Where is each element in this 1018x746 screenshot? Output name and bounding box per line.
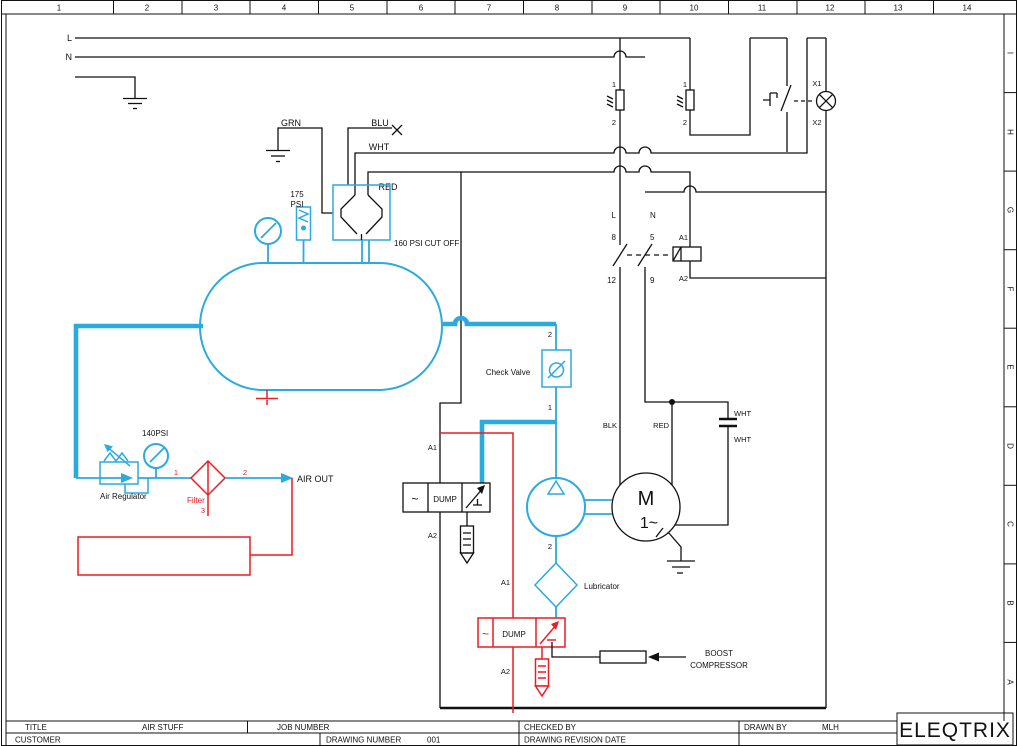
lubricator: Lubricator [535, 563, 620, 618]
schematic-page: 1 2 3 4 5 6 7 8 9 10 11 12 13 14 I H G F… [0, 0, 1018, 746]
coupling-icon [584, 500, 612, 514]
dump2-a2: A2 [501, 667, 510, 676]
pressure-actuated-switch [763, 38, 812, 152]
actuator-icon [763, 93, 777, 106]
ruler-6: 6 [419, 4, 424, 13]
ruler-7: 7 [487, 4, 492, 13]
zone-c: C [1006, 521, 1015, 527]
check-valve-port-2: 2 [548, 330, 552, 339]
dump2-label: DUMP [502, 630, 526, 639]
muffler-icon [536, 647, 549, 696]
zone-f: F [1006, 287, 1015, 292]
muffler-icon [461, 512, 474, 563]
customer-label: CUSTOMER [15, 736, 61, 745]
zone-d: D [1006, 443, 1015, 449]
contactor: L N 8 5 12 9 A1 A2 [607, 186, 826, 485]
lamp-x1: X1 [812, 79, 821, 88]
pump-port-2: 2 [548, 542, 552, 551]
dump1-a1: A1 [428, 443, 437, 452]
dump-valve-1: ~ DUMP A1 A2 [403, 443, 490, 563]
wire-wht-cap-bot: WHT [734, 435, 751, 444]
boost-box [600, 651, 646, 663]
fuse1-terminal-1: 1 [612, 80, 616, 89]
coil-a1: A1 [679, 233, 688, 242]
wire-blu-label: BLU [371, 118, 389, 128]
ruler-13: 13 [894, 4, 903, 13]
dump2-a1: A1 [501, 578, 510, 587]
ruler-2: 2 [145, 4, 150, 13]
lamp-x2: X2 [812, 118, 821, 127]
ruler-1: 1 [57, 4, 62, 13]
ruler-3: 3 [214, 4, 219, 13]
dump1-a2: A2 [428, 531, 437, 540]
switch-contact-left [341, 195, 357, 234]
lubricator-label: Lubricator [584, 582, 620, 591]
zone-a: A [1006, 679, 1015, 685]
zone-i: I [1006, 52, 1015, 54]
fuse-2: 1 2 [677, 38, 750, 135]
boost-solenoid-wiring: A1 A2 [440, 433, 513, 713]
ruler-8: 8 [555, 4, 560, 13]
neutral-link [645, 186, 826, 192]
switch-pipe [362, 240, 369, 263]
tank-icon [200, 263, 442, 390]
coil-a2: A2 [679, 274, 688, 283]
ruler-10: 10 [690, 4, 699, 13]
relief-psi-1: 175 [290, 190, 304, 199]
contactor-12: 12 [607, 276, 616, 285]
compressor-pump: 2 [527, 478, 612, 563]
checked-by-label: CHECKED BY [524, 723, 577, 732]
filter: Filter 1 2 3 [174, 461, 247, 516]
motor-ground-icon [656, 528, 695, 573]
contactor-8: 8 [612, 233, 617, 242]
drawing-number-value: 001 [427, 736, 441, 745]
ruler-14: 14 [963, 4, 972, 13]
capacitor-icon [719, 419, 737, 426]
ruler-5: 5 [350, 4, 355, 13]
boost-compressor-callout: BOOST COMPRESSOR [552, 642, 748, 670]
switch-contact-right [366, 195, 382, 234]
fuse2-terminal-1: 1 [683, 80, 687, 89]
dump1-label: DUMP [433, 495, 457, 504]
relief-psi-2: PSI [291, 200, 304, 209]
neutral-label: N [66, 52, 73, 62]
solenoid-ac-icon: ~ [482, 627, 489, 641]
drawing-revision-label: DRAWING REVISION DATE [524, 736, 626, 745]
line-label: L [67, 33, 72, 43]
zone-h: H [1006, 129, 1015, 135]
wire-grn-label: GRN [281, 118, 301, 128]
lubricator-icon [535, 563, 577, 607]
filter-label: Filter [187, 496, 205, 505]
wire-wht-label: WHT [369, 142, 390, 152]
zone-e: E [1006, 364, 1015, 369]
title-label: TITLE [25, 723, 47, 732]
company-logo: ELEQTRIX [899, 719, 1011, 742]
equipment-box [78, 537, 250, 575]
drawn-by-label: DRAWN BY [744, 723, 787, 732]
wire-wht-cap-top: WHT [734, 409, 751, 418]
wire-red-motor-label: RED [653, 421, 669, 430]
regulator-label: Air Regulator [100, 492, 147, 501]
pilot-lamp: X1 X2 [812, 38, 835, 708]
receiver-tank [200, 263, 442, 390]
zone-g: G [1006, 207, 1015, 213]
wire-blk-label: BLK [603, 421, 617, 430]
fuse2-terminal-2: 2 [683, 118, 687, 127]
filter-port-1: 1 [174, 468, 178, 477]
air-out-label: AIR OUT [297, 474, 334, 484]
motor-circuit: BLK RED WHT WHT [603, 399, 752, 525]
tank-drain [256, 390, 278, 405]
air-out: AIR OUT [225, 473, 334, 484]
contactor-n: N [650, 211, 656, 220]
drawn-by-value: MLH [822, 723, 839, 732]
earth-ground-icon [266, 151, 290, 162]
callout-arrow-icon [648, 653, 659, 662]
relief-valve: 175 PSI [290, 190, 310, 263]
drawing-number-label: DRAWING NUMBER [326, 736, 401, 745]
ruler-9: 9 [623, 4, 628, 13]
ruler-numbers: 1 2 3 4 5 6 7 8 9 10 11 12 13 14 [57, 4, 972, 13]
regulated-gauge: 140PSI [142, 429, 168, 478]
contactor-l: L [612, 211, 617, 220]
job-number-label: JOB NUMBER [277, 723, 330, 732]
tank-gauge [255, 218, 281, 263]
check-valve-port-1: 1 [548, 403, 552, 412]
cutoff-label: 160 PSI CUT OFF [394, 239, 459, 248]
fuse1-terminal-2: 2 [612, 118, 616, 127]
filter-port-3: 3 [201, 506, 205, 515]
solenoid-ac-icon: ~ [411, 492, 418, 506]
check-valve-label: Check Valve [486, 368, 531, 377]
title-block: TITLE AIR STUFF JOB NUMBER CHECKED BY DR… [6, 713, 1013, 745]
contactor-5: 5 [650, 233, 655, 242]
regulator-box [100, 462, 138, 484]
contact-blade-l [613, 244, 627, 266]
earth-ground-icon [123, 99, 147, 109]
ruler-11: 11 [758, 4, 767, 13]
air-out-arrow-icon [281, 473, 293, 483]
motor: M 1~ [612, 473, 695, 573]
ruler-12: 12 [826, 4, 835, 13]
zone-b: B [1006, 600, 1015, 605]
ruler-ticks [114, 1, 934, 15]
boost-label-2: COMPRESSOR [690, 661, 748, 670]
motor-phase: 1~ [640, 515, 658, 532]
boost-label-1: BOOST [705, 649, 733, 658]
filter-port-2: 2 [243, 468, 247, 477]
ruler-4: 4 [282, 4, 287, 13]
power-rails: L N [66, 33, 827, 109]
capped-wire-icon [392, 125, 402, 135]
regulator-psi: 140PSI [142, 429, 168, 438]
wire-red-label: RED [378, 182, 398, 192]
zone-letter-column: I H G F E D C B A [1004, 52, 1017, 685]
pressure-switch: 160 PSI CUT OFF [333, 185, 459, 263]
check-valve: Check Valve 2 1 [486, 324, 571, 478]
motor-m: M [638, 488, 655, 510]
contactor-9: 9 [650, 276, 655, 285]
title-value: AIR STUFF [142, 723, 183, 732]
schematic-canvas: 1 2 3 4 5 6 7 8 9 10 11 12 13 14 I H G F… [0, 0, 1018, 746]
pressure-switch-wiring: GRN BLU WHT RED [266, 38, 807, 247]
